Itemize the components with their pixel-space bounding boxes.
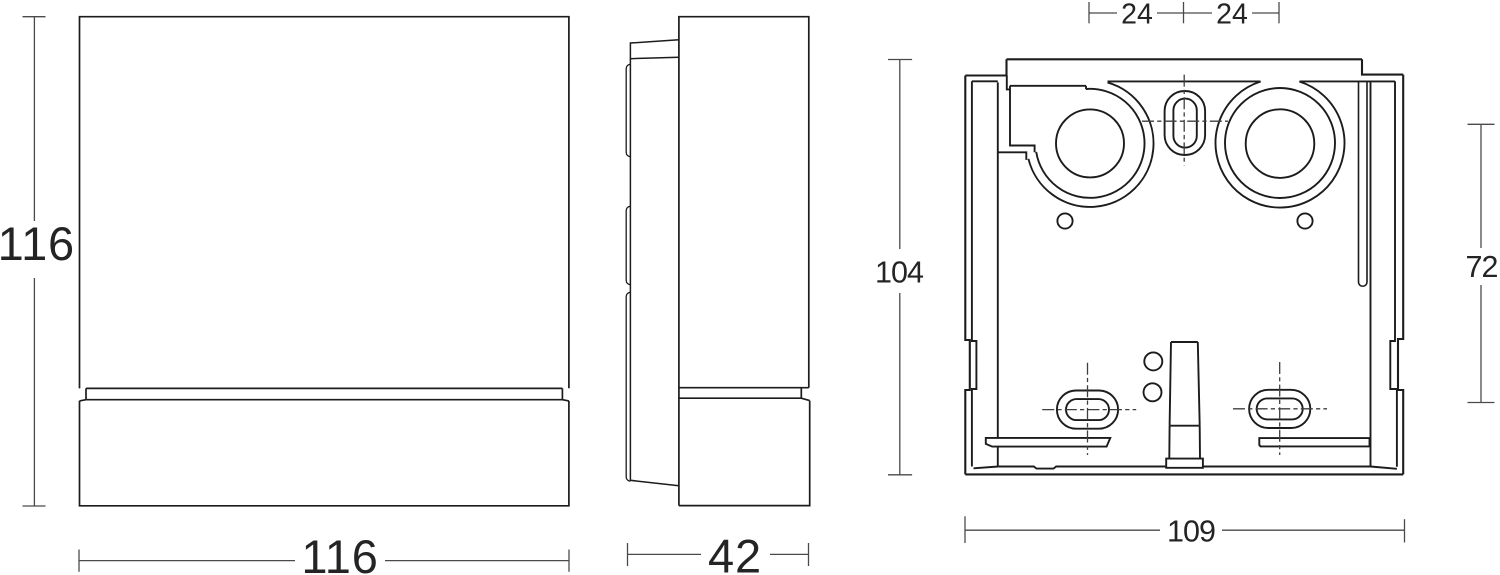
svg-text:104: 104 [875,256,924,290]
svg-text:72: 72 [1466,250,1498,284]
svg-text:109: 109 [1167,515,1215,549]
svg-text:116: 116 [301,530,378,575]
svg-text:24: 24 [1216,0,1248,31]
svg-text:42: 42 [708,530,762,575]
svg-text:24: 24 [1121,0,1153,31]
svg-text:116: 116 [0,217,75,270]
